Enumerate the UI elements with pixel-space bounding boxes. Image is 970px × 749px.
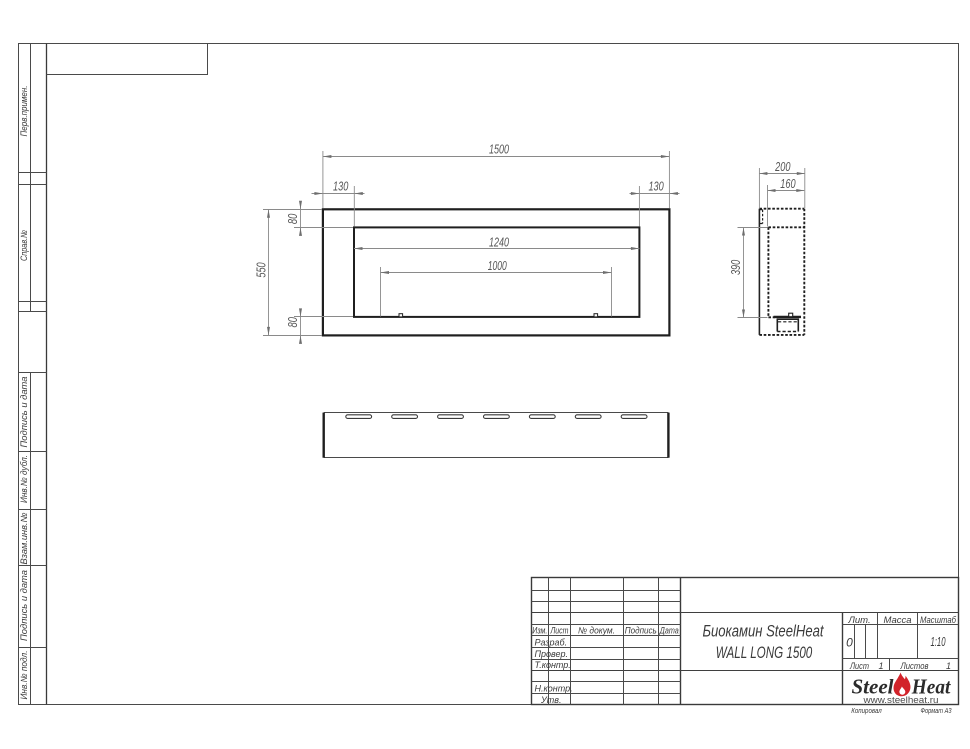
svg-text:130: 130 <box>333 180 348 194</box>
svg-text:Утв.: Утв. <box>540 695 561 705</box>
svg-text:Подпись и дата: Подпись и дата <box>19 377 29 448</box>
svg-text:1:10: 1:10 <box>931 635 946 649</box>
svg-text:Листов: Листов <box>900 661 929 671</box>
svg-text:Копировал: Копировал <box>851 706 882 715</box>
svg-text:Т.контр.: Т.контр. <box>535 660 571 670</box>
svg-text:Формат А3: Формат А3 <box>921 706 953 715</box>
svg-text:80: 80 <box>286 214 300 224</box>
svg-text:Биокамин SteelHeat: Биокамин SteelHeat <box>703 622 825 641</box>
svg-text:Дата: Дата <box>659 626 679 636</box>
svg-text:Масса: Масса <box>883 615 911 626</box>
svg-text:80: 80 <box>286 317 300 327</box>
svg-text:1000: 1000 <box>488 259 507 273</box>
svg-text:WALL LONG 1500: WALL LONG 1500 <box>716 643 813 662</box>
svg-text:Подпись и дата: Подпись и дата <box>19 570 29 641</box>
svg-text:130: 130 <box>648 180 663 194</box>
svg-text:1500: 1500 <box>489 142 509 156</box>
svg-text:1: 1 <box>946 661 951 671</box>
svg-text:Инв.№ дубл.: Инв.№ дубл. <box>19 455 29 503</box>
svg-text:№ докум.: № докум. <box>578 626 615 636</box>
svg-text:Лист: Лист <box>550 626 569 636</box>
svg-text:Лист: Лист <box>849 661 869 671</box>
svg-text:Справ.№: Справ.№ <box>19 230 29 261</box>
svg-text:1: 1 <box>879 661 884 671</box>
svg-text:Изм.: Изм. <box>532 626 547 636</box>
svg-text:550: 550 <box>254 262 268 277</box>
svg-text:160: 160 <box>780 177 795 191</box>
svg-text:Взам.инв.№: Взам.инв.№ <box>19 512 29 564</box>
svg-text:Подпись: Подпись <box>625 626 657 636</box>
svg-text:200: 200 <box>774 160 790 174</box>
svg-text:Лит.: Лит. <box>847 615 870 626</box>
svg-text:390: 390 <box>729 260 743 275</box>
svg-text:Масштаб: Масштаб <box>920 615 957 626</box>
svg-text:Инв.№ подл.: Инв.№ подл. <box>19 651 29 700</box>
svg-text:1240: 1240 <box>489 235 509 249</box>
svg-text:Провер.: Провер. <box>535 649 569 659</box>
svg-text:Перв.примен.: Перв.примен. <box>19 86 29 137</box>
svg-text:Разраб.: Разраб. <box>535 637 568 647</box>
svg-text:0: 0 <box>846 636 853 650</box>
svg-text:Н.контр.: Н.контр. <box>535 683 573 693</box>
svg-text:www.steelheat.ru: www.steelheat.ru <box>862 695 938 706</box>
